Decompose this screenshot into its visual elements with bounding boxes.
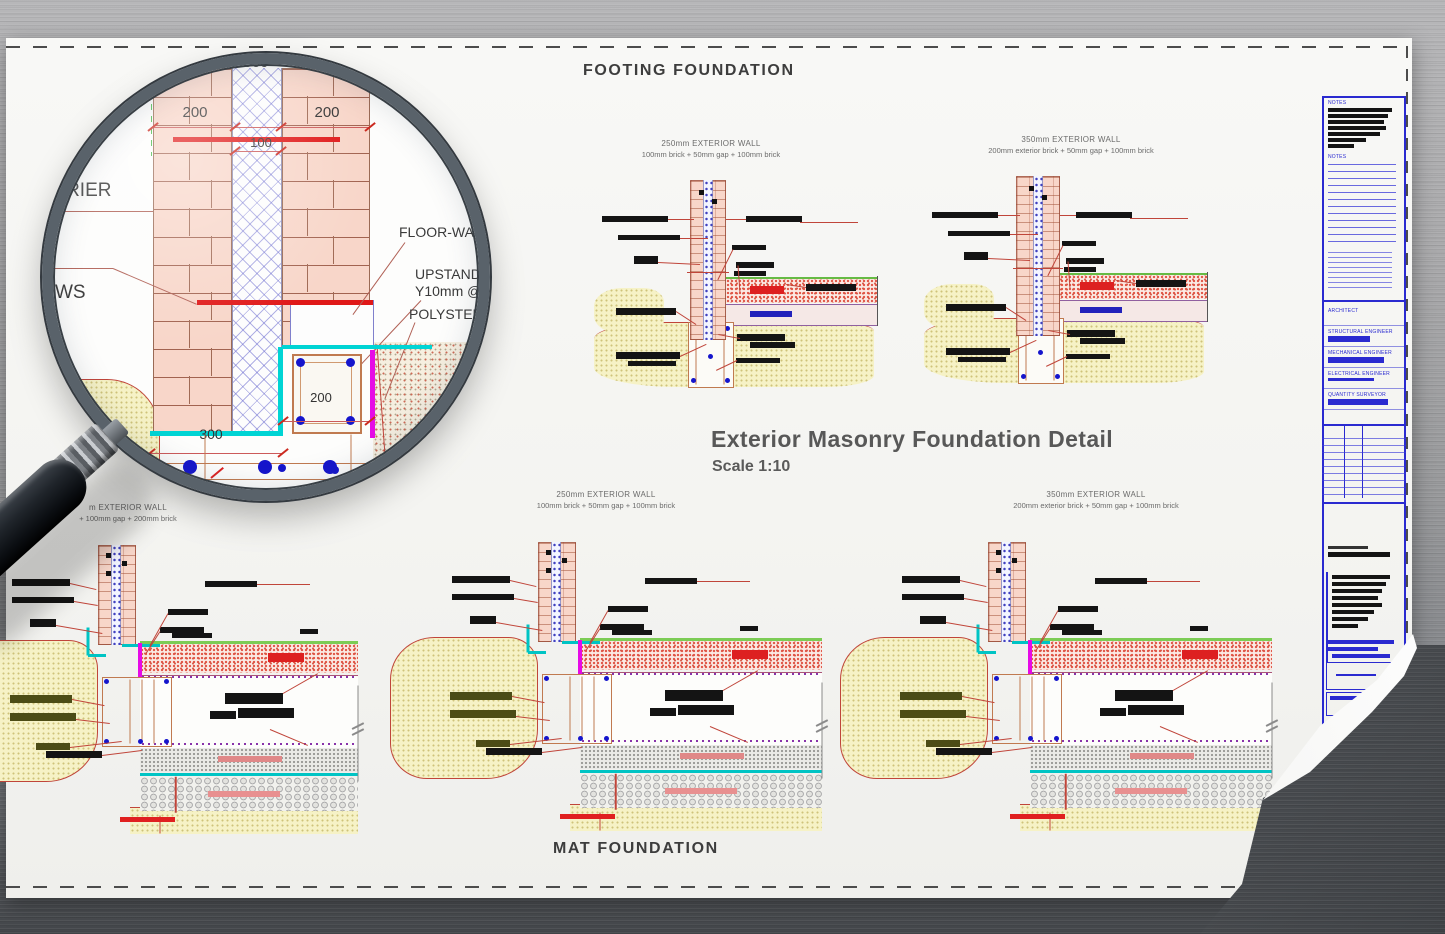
callout-olive xyxy=(926,740,960,747)
tb-box-line xyxy=(1336,674,1376,676)
dpc-cyan xyxy=(528,651,546,654)
leader-line xyxy=(726,219,746,220)
callout-redacted xyxy=(665,690,723,701)
leader-line xyxy=(175,777,177,813)
mat-dots-top xyxy=(142,676,356,678)
tb-rule-line xyxy=(1328,282,1392,283)
callout-redacted xyxy=(946,304,1006,311)
callout-redacted xyxy=(750,342,795,348)
tb-redacted xyxy=(1328,132,1380,136)
wall-cavity xyxy=(1001,542,1011,642)
callout-redacted xyxy=(608,606,648,612)
rebar-dot xyxy=(104,679,109,684)
wall-tie xyxy=(546,550,551,555)
dpc-line xyxy=(687,272,729,273)
screed-hatch xyxy=(1030,641,1272,670)
callout-redacted xyxy=(902,594,964,600)
tb-rule-line xyxy=(1328,277,1392,278)
mat-detail-2-label: 250mm EXTERIOR WALL 100mm brick + 50mm g… xyxy=(461,489,751,511)
callout-redacted xyxy=(168,609,208,615)
callout-redacted xyxy=(936,748,992,755)
ground-hatch-left xyxy=(840,637,988,779)
callout-redacted xyxy=(645,578,697,584)
leader-line xyxy=(514,598,538,603)
tb-mini-header xyxy=(1328,546,1368,549)
tb-redacted xyxy=(1332,589,1382,593)
tb-redacted xyxy=(1328,120,1384,124)
tb-rule xyxy=(1322,96,1406,98)
tb-rule-line xyxy=(1328,171,1396,172)
dpm-vertical xyxy=(1028,640,1032,674)
rebar-dot xyxy=(1055,374,1060,379)
tb-table-hline xyxy=(1322,473,1406,474)
tb-project-bar xyxy=(1332,654,1390,658)
callout-olive xyxy=(450,692,512,700)
rebar-dot xyxy=(164,739,169,744)
leader-line xyxy=(615,774,617,810)
callout-redacted xyxy=(650,708,676,716)
rebar-dot xyxy=(1021,374,1026,379)
break-line xyxy=(822,682,823,778)
leader-line xyxy=(998,215,1020,216)
ground-hatch-left xyxy=(390,637,538,779)
tb-rule xyxy=(1322,388,1406,389)
tb-rule xyxy=(1322,300,1406,302)
tb-rule-line xyxy=(1328,185,1396,186)
callout-redacted xyxy=(932,212,998,218)
tb-rule-line xyxy=(1328,199,1396,200)
tb-rule xyxy=(1322,502,1406,504)
rebar-dot xyxy=(994,676,999,681)
leader-line xyxy=(668,219,694,220)
mat-detail-3-subtitle: 200mm exterior brick + 50mm gap + 100mm … xyxy=(951,501,1241,512)
blinding-text-smear xyxy=(1130,753,1194,759)
leader-line xyxy=(510,580,536,587)
tb-rule-line xyxy=(1328,227,1396,228)
mat-detail-2-title: 250mm EXTERIOR WALL xyxy=(461,489,751,501)
leader-line xyxy=(496,622,542,631)
tb-rule-line xyxy=(1328,178,1396,179)
dpm-vertical xyxy=(138,643,142,677)
callout-redacted xyxy=(486,748,542,755)
tb-role-value xyxy=(1328,378,1374,381)
callout-redacted xyxy=(1062,241,1096,246)
callout-redacted xyxy=(612,630,652,635)
callout-redacted xyxy=(678,705,734,715)
leader-line xyxy=(1010,234,1038,235)
blinding-text-smear xyxy=(680,753,744,759)
upstand-outline xyxy=(102,677,172,747)
tb-redacted xyxy=(1328,114,1388,118)
hardcore-text-smear xyxy=(665,788,737,794)
mat-detail-2-drawing xyxy=(450,542,830,832)
footing-detail-1-title: 250mm EXTERIOR WALL xyxy=(566,138,856,150)
blinding-text-smear xyxy=(218,756,282,762)
tb-role-label: ARCHITECT xyxy=(1328,308,1400,314)
tb-rule-line xyxy=(1328,241,1396,242)
tb-redacted xyxy=(1332,624,1358,628)
wall-cavity xyxy=(703,180,713,340)
tb-rule xyxy=(1322,325,1406,326)
tb-redacted xyxy=(1332,610,1374,614)
tb-redacted xyxy=(1332,603,1382,607)
callout-redacted xyxy=(732,245,766,250)
dpm-line xyxy=(1030,770,1272,773)
footing-detail-1-label: 250mm EXTERIOR WALL 100mm brick + 50mm g… xyxy=(566,138,856,160)
footing-foundation-title: FOOTING FOUNDATION xyxy=(583,62,795,80)
leader-line xyxy=(1060,215,1076,216)
dpc-cyan xyxy=(978,651,996,654)
leader-line xyxy=(946,622,992,631)
dpc-line xyxy=(1013,268,1063,269)
leader-line xyxy=(102,750,142,756)
callout-redacted xyxy=(1066,354,1110,359)
leader-line xyxy=(964,598,988,603)
rebar-dot xyxy=(544,676,549,681)
upstand-line xyxy=(1044,676,1045,740)
callout-redacted xyxy=(1136,280,1186,287)
callout-redacted xyxy=(1058,606,1098,612)
tb-redacted xyxy=(1332,575,1390,579)
upstand-line xyxy=(1032,676,1033,740)
footing-detail-1-subtitle: 100mm brick + 50mm gap + 100mm brick xyxy=(566,150,856,161)
tb-table-hline xyxy=(1322,494,1406,495)
sheet-margin-bottom xyxy=(6,886,1246,888)
callout-redacted xyxy=(958,357,1006,362)
screed-text-smear xyxy=(750,286,784,294)
rebar-dot xyxy=(604,676,609,681)
screed-text-smear xyxy=(1182,650,1218,659)
callout-redacted xyxy=(616,352,680,359)
wall-cavity xyxy=(111,545,121,645)
screed-hatch xyxy=(580,641,822,670)
tb-table-hline xyxy=(1322,438,1406,439)
rebar-dot xyxy=(725,378,730,383)
callout-redacted xyxy=(736,358,780,363)
section-mark-red xyxy=(1010,814,1065,819)
tb-role-value xyxy=(1328,357,1384,363)
mat-detail-3-label: 350mm EXTERIOR WALL 200mm exterior brick… xyxy=(951,489,1241,511)
mat-detail-3-drawing xyxy=(900,542,1280,832)
tb-redacted xyxy=(1332,596,1378,600)
break-line xyxy=(358,685,359,781)
leader-line xyxy=(74,601,98,606)
screed-text-smear xyxy=(732,650,768,659)
tb-redacted xyxy=(1328,138,1366,142)
screed-hatch xyxy=(140,644,358,673)
tb-notes-bottom-label: NOTES xyxy=(1328,154,1346,160)
slab-text-smear xyxy=(1080,307,1122,313)
footing-detail-2-label: 350mm EXTERIOR WALL 200mm exterior brick… xyxy=(926,134,1216,156)
mat-detail-2-subtitle: 100mm brick + 50mm gap + 100mm brick xyxy=(461,501,751,512)
leader-line xyxy=(800,222,858,223)
upstand-outline xyxy=(992,674,1062,744)
callout-redacted xyxy=(1190,626,1208,631)
callout-redacted xyxy=(1066,258,1104,264)
tb-redacted xyxy=(1332,582,1386,586)
slab-edge xyxy=(877,276,878,326)
wall-tie xyxy=(1029,186,1034,191)
callout-redacted xyxy=(746,216,802,222)
scale-note: Scale 1:10 xyxy=(712,458,790,476)
callout-redacted xyxy=(210,711,236,719)
footing-detail-2-title: 350mm EXTERIOR WALL xyxy=(926,134,1216,146)
tb-table-hline xyxy=(1322,459,1406,460)
rebar-dot xyxy=(1054,736,1059,741)
callout-redacted xyxy=(1095,578,1147,584)
wall-tie xyxy=(1012,558,1017,563)
callout-redacted xyxy=(1076,212,1132,218)
callout-redacted xyxy=(1062,630,1102,635)
mat-dots-bottom xyxy=(582,740,820,742)
screed-hatch xyxy=(726,279,878,303)
leader-line xyxy=(1130,218,1188,219)
leader-line xyxy=(56,625,102,634)
tb-role-label: QUANTITY SURVEYOR xyxy=(1328,392,1400,398)
callout-redacted xyxy=(736,262,774,268)
tb-role-value xyxy=(1328,336,1370,342)
tb-table-hline xyxy=(1322,480,1406,481)
footing-detail-2-subtitle: 200mm exterior brick + 50mm gap + 100mm … xyxy=(926,146,1216,157)
callout-olive xyxy=(450,710,516,718)
callout-redacted xyxy=(618,235,680,240)
callout-redacted xyxy=(737,334,785,341)
callout-olive xyxy=(36,743,70,750)
callout-redacted xyxy=(225,693,283,704)
wall-cavity xyxy=(551,542,561,642)
tb-border-left xyxy=(1322,96,1324,816)
tb-rule xyxy=(1322,424,1406,426)
tb-redacted xyxy=(1332,617,1368,621)
callout-redacted xyxy=(948,231,1010,236)
tb-role-label: ELECTRICAL ENGINEER xyxy=(1328,371,1400,377)
tb-role-value xyxy=(1328,399,1388,405)
callout-redacted xyxy=(300,629,318,634)
tb-rule xyxy=(1322,367,1406,368)
tb-rule-line xyxy=(1328,287,1392,288)
rebar-dot xyxy=(691,378,696,383)
callout-olive xyxy=(476,740,510,747)
tb-rule-line xyxy=(1328,192,1396,193)
tb-rule-line xyxy=(1328,220,1396,221)
hardcore-text-smear xyxy=(208,791,280,797)
leader-line xyxy=(992,747,1032,753)
tb-rule xyxy=(1322,346,1406,347)
tb-rule-line xyxy=(1328,257,1392,258)
tb-table-hline xyxy=(1322,466,1406,467)
upstand-line xyxy=(582,676,583,740)
dpc-cyan xyxy=(88,654,106,657)
tb-table-hline xyxy=(1322,487,1406,488)
upstand-line xyxy=(570,676,571,740)
tb-redacted xyxy=(1328,552,1390,557)
dpm-line xyxy=(580,770,822,773)
callout-redacted xyxy=(1080,338,1125,344)
callout-redacted xyxy=(616,308,676,315)
callout-redacted xyxy=(238,708,294,718)
rebar-dot xyxy=(604,736,609,741)
screed-text-smear xyxy=(268,653,304,662)
leader-line xyxy=(960,580,986,587)
callout-redacted xyxy=(1100,708,1126,716)
callout-redacted xyxy=(452,576,510,583)
rebar-dot xyxy=(1054,676,1059,681)
callout-olive xyxy=(900,692,962,700)
tb-rule-line xyxy=(1328,206,1396,207)
section-mark-red xyxy=(560,814,615,819)
slab-edge xyxy=(1207,272,1208,322)
callout-redacted xyxy=(172,633,212,638)
mat-dots-top xyxy=(582,673,820,675)
callout-redacted xyxy=(46,751,102,758)
tb-table-hline xyxy=(1322,445,1406,446)
tb-rule-line xyxy=(1328,262,1392,263)
rebar-dot xyxy=(708,354,713,359)
tb-rule-line xyxy=(1328,267,1392,268)
callout-redacted xyxy=(1067,330,1115,337)
upstand-line xyxy=(154,679,155,743)
tb-rule-line xyxy=(1328,164,1396,165)
rebar-dot xyxy=(1028,736,1033,741)
mat-dots-bottom xyxy=(1032,740,1270,742)
callout-redacted xyxy=(1115,690,1173,701)
wall-tie xyxy=(122,561,127,566)
tb-project-bar xyxy=(1328,640,1394,644)
slab-band xyxy=(1056,300,1208,322)
tb-rule-line xyxy=(1328,272,1392,273)
callout-olive xyxy=(900,710,966,718)
dpm-line xyxy=(140,773,358,776)
leader-line xyxy=(1065,774,1067,810)
callout-redacted xyxy=(205,581,257,587)
sheet-margin-top xyxy=(6,46,1408,48)
tb-rule-line xyxy=(1328,234,1396,235)
ground-hatch-left xyxy=(0,640,98,782)
tb-notes-top-label: NOTES xyxy=(1328,100,1346,106)
wall-cavity xyxy=(1033,176,1043,336)
tb-redacted xyxy=(1328,144,1354,148)
tb-table-hline xyxy=(1322,452,1406,453)
tb-redacted xyxy=(1328,108,1392,112)
rebar-dot xyxy=(1038,350,1043,355)
footing-detail-1-drawing xyxy=(600,172,880,402)
dpm-vertical xyxy=(578,640,582,674)
screed-hatch xyxy=(1056,275,1208,299)
callout-redacted xyxy=(946,348,1010,355)
upstand-outline xyxy=(542,674,612,744)
callout-redacted xyxy=(920,616,946,624)
tb-redacted xyxy=(1328,126,1386,130)
wall-tie xyxy=(546,568,551,573)
wall-tie xyxy=(1042,195,1047,200)
callout-redacted xyxy=(602,216,668,222)
tb-rule xyxy=(1322,409,1406,410)
mat-detail-3-title: 350mm EXTERIOR WALL xyxy=(951,489,1241,501)
callout-redacted xyxy=(1128,705,1184,715)
mat-dots-bottom xyxy=(142,743,356,745)
page-title: Exterior Masonry Foundation Detail xyxy=(711,426,1113,453)
wall-tie xyxy=(699,190,704,195)
wall-tie xyxy=(712,199,717,204)
break-line xyxy=(1272,682,1273,778)
callout-redacted xyxy=(634,256,658,264)
wall-tie xyxy=(996,550,1001,555)
wall-tie xyxy=(996,568,1001,573)
tb-rule-line xyxy=(1328,213,1396,214)
screed-text-smear xyxy=(1080,282,1114,290)
callout-redacted xyxy=(806,284,856,291)
hardcore-text-smear xyxy=(1115,788,1187,794)
upstand-line xyxy=(130,679,131,743)
callout-redacted xyxy=(902,576,960,583)
rebar-dot xyxy=(164,679,169,684)
upstand-line xyxy=(142,679,143,743)
callout-redacted xyxy=(628,361,676,366)
mat-foundation-title: MAT FOUNDATION xyxy=(553,840,719,858)
tb-project-bar xyxy=(1328,647,1378,651)
tb-role-label: MECHANICAL ENGINEER xyxy=(1328,350,1400,356)
callout-redacted xyxy=(470,616,496,624)
tb-role-label: STRUCTURAL ENGINEER xyxy=(1328,329,1400,335)
upstand-line xyxy=(594,676,595,740)
upstand-line xyxy=(1020,676,1021,740)
callout-redacted xyxy=(452,594,514,600)
mat-dots-top xyxy=(1032,673,1270,675)
callout-redacted xyxy=(740,626,758,631)
footing-detail-2-drawing xyxy=(930,168,1210,398)
wall-tie xyxy=(562,558,567,563)
slab-band xyxy=(726,304,878,326)
tb-rule-line xyxy=(1328,252,1392,253)
callout-redacted xyxy=(964,252,988,260)
rebar-dot xyxy=(138,739,143,744)
leader-line xyxy=(680,238,708,239)
rebar-dot xyxy=(578,736,583,741)
leader-line xyxy=(1147,581,1200,582)
callout-olive xyxy=(10,713,76,721)
section-mark-red xyxy=(120,817,175,822)
leader-line xyxy=(697,581,750,582)
leader-line xyxy=(542,747,582,753)
leader-line xyxy=(257,584,310,585)
callout-olive xyxy=(10,695,72,703)
wall-tie xyxy=(106,571,111,576)
slab-text-smear xyxy=(750,311,792,317)
